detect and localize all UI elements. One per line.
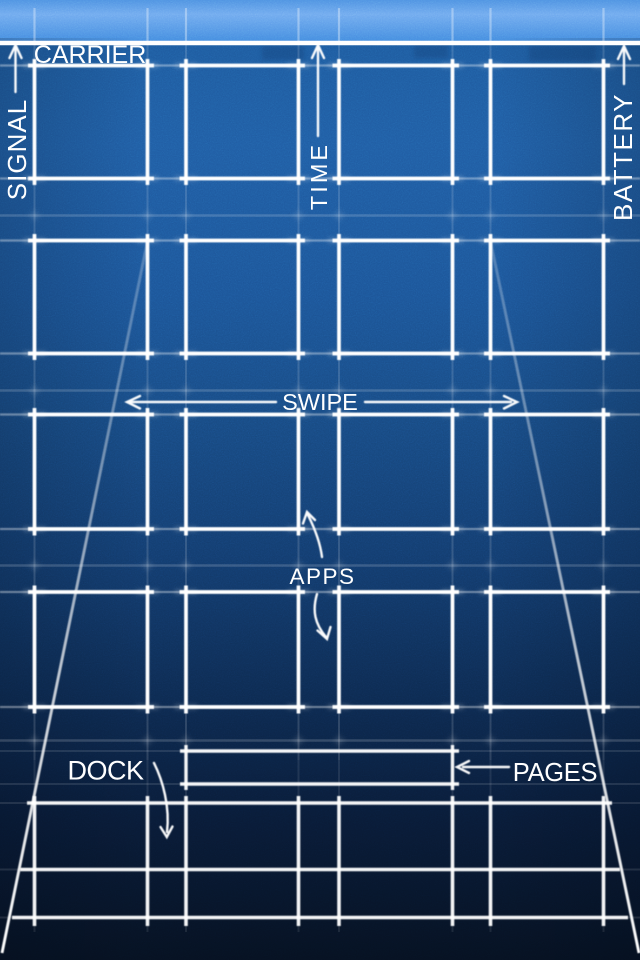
svg-text:TIME: TIME	[306, 142, 332, 210]
svg-text:CARRIER: CARRIER	[34, 41, 147, 69]
svg-text:SWIPE: SWIPE	[282, 389, 358, 415]
svg-text:PAGES: PAGES	[513, 759, 597, 787]
svg-text:APPS: APPS	[289, 564, 355, 589]
svg-text:SIGNAL: SIGNAL	[2, 99, 32, 200]
svg-text:DOCK: DOCK	[67, 756, 143, 786]
svg-text:BATTERY: BATTERY	[608, 93, 638, 221]
